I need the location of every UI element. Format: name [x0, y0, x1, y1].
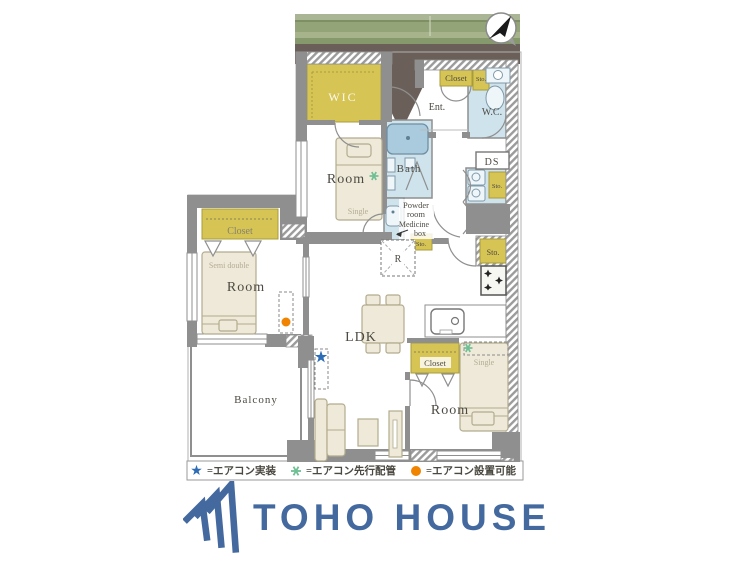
room-top-label: Room	[327, 172, 365, 187]
brand-logo-text: TOHO HOUSE	[253, 497, 551, 539]
ldk-label: LDK	[345, 330, 377, 345]
legend-asterisk-icon	[290, 465, 302, 477]
medicine-label-2: box	[414, 229, 426, 238]
powder-storage-label: Sto.	[416, 241, 427, 248]
kitchen-sink	[425, 305, 506, 337]
balcony-label: Balcony	[234, 394, 278, 406]
kitchen-storage-label: Sto.	[487, 248, 500, 257]
legend-circle-icon	[410, 465, 422, 477]
legend-bar: =エアコン実装 =エアコン先行配管 =エアコン設置可能	[190, 462, 522, 479]
entry-storage-label: Sto.	[476, 76, 487, 83]
legend-star-label: =エアコン実装	[207, 463, 276, 478]
ac-possible-dot	[282, 318, 291, 327]
floorplan-page: WIC Room Single Closet Sto. Ent. W.C. Ba…	[0, 0, 750, 563]
entrance-label: Ent.	[429, 102, 445, 113]
window-room-left	[187, 253, 197, 321]
laundry-storage-label: Sto.	[492, 183, 503, 190]
powder-door	[433, 205, 460, 237]
window-bottom-2	[437, 451, 501, 460]
medicine-label-1: Medicine	[399, 220, 430, 229]
sliding-door-room-left	[303, 257, 309, 297]
wic-label: WIC	[328, 90, 357, 104]
legend-asterisk-label: =エアコン先行配管	[306, 463, 396, 478]
legend-circle-label: =エアコン設置可能	[426, 463, 516, 478]
semi-double-label: Semi double	[209, 261, 250, 270]
legend-star-icon	[190, 464, 203, 477]
window-balcony-ldk	[308, 360, 314, 418]
entry-closet-label: Closet	[445, 73, 467, 83]
single-top-label: Single	[348, 207, 369, 216]
bottom-closet-label: Closet	[424, 358, 446, 368]
coffee-table	[358, 419, 378, 446]
room-left-label: Room	[227, 280, 265, 295]
ac-installed-star	[315, 351, 327, 363]
powder-label-2: room	[407, 209, 425, 219]
ds-label: DS	[485, 157, 500, 168]
window-room-top-left	[296, 141, 307, 217]
bathtub	[387, 124, 428, 154]
room-bottom-label: Room	[431, 403, 469, 418]
fridge-label: R	[395, 254, 402, 265]
bath-label: Bath	[397, 163, 422, 175]
ldk-door	[448, 238, 476, 266]
window-balcony-left	[197, 334, 267, 344]
stove	[481, 266, 506, 295]
wc-label: W.C.	[482, 107, 502, 118]
tv-board	[389, 411, 402, 457]
sofa	[315, 399, 345, 461]
left-closet-label: Closet	[227, 226, 253, 237]
single-bottom-label: Single	[474, 358, 495, 367]
brand-logo-mark	[183, 481, 241, 555]
brand-logo: TOHO HOUSE	[183, 481, 573, 555]
